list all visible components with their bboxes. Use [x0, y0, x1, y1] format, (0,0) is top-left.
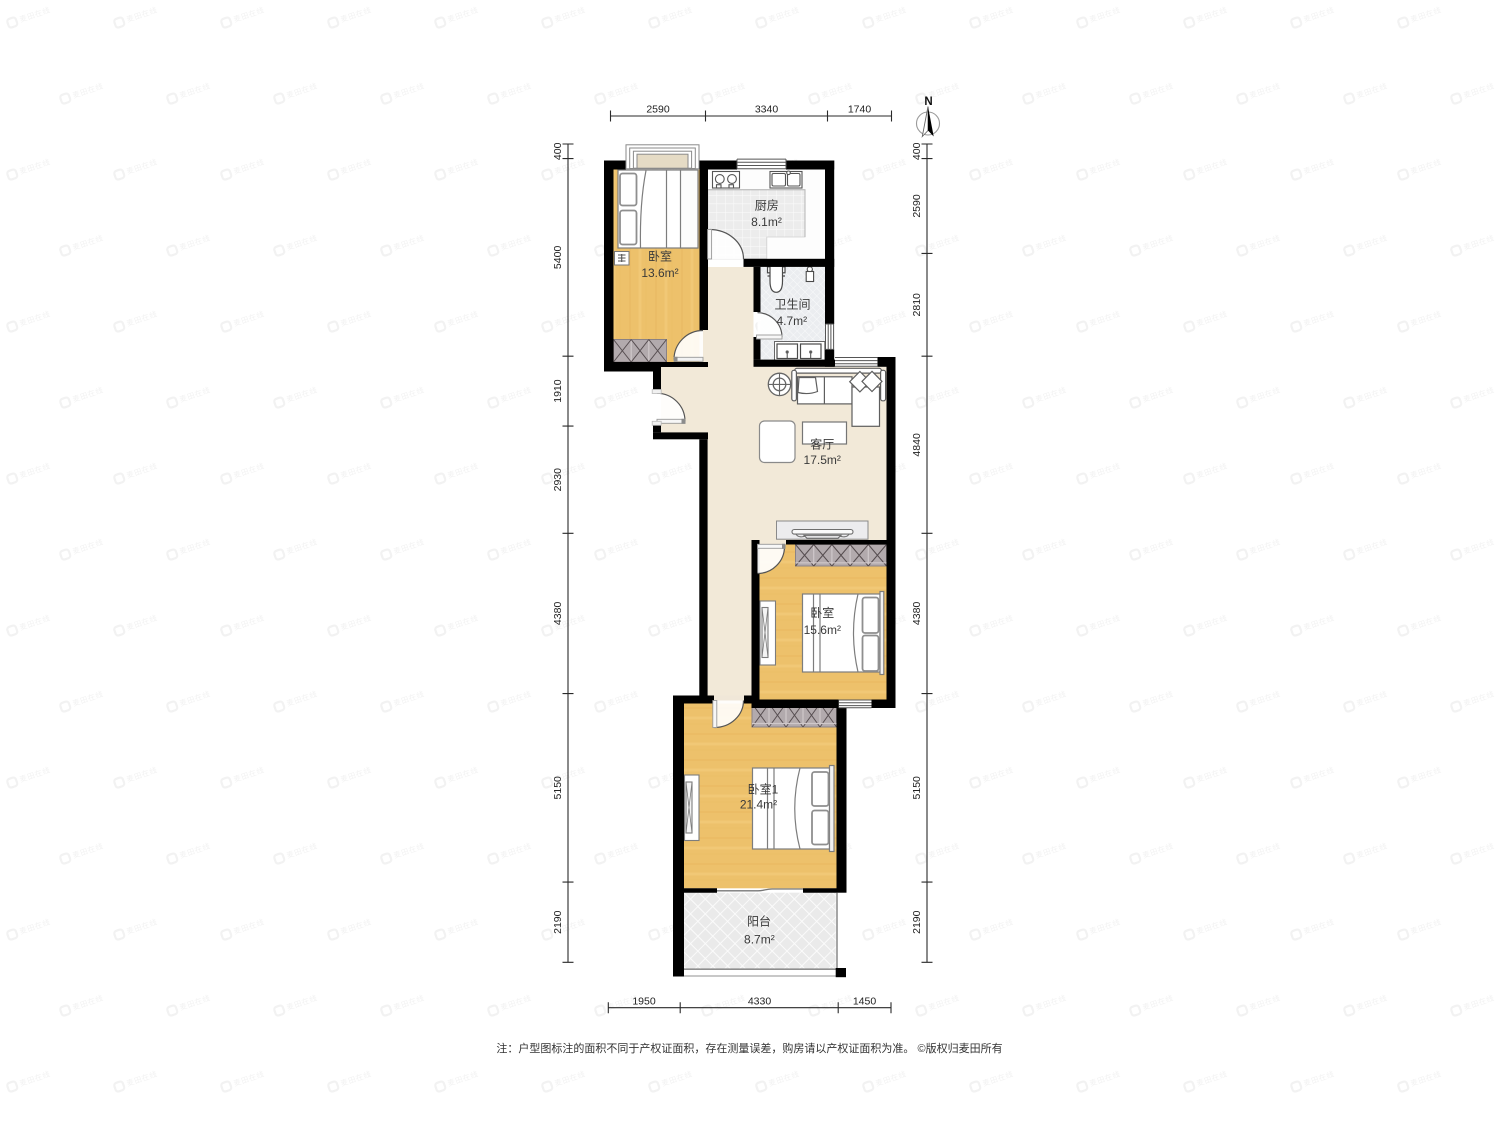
svg-text:4380: 4380: [911, 602, 923, 626]
svg-text:阳台: 阳台: [747, 914, 771, 929]
svg-text:N: N: [924, 96, 932, 108]
svg-text:2190: 2190: [911, 910, 923, 934]
svg-text:17.5m²: 17.5m²: [804, 453, 841, 467]
svg-text:5150: 5150: [552, 776, 564, 800]
svg-text:4840: 4840: [911, 433, 923, 457]
svg-text:卧室: 卧室: [810, 605, 834, 620]
svg-text:21.4m²: 21.4m²: [740, 798, 777, 812]
svg-text:5400: 5400: [552, 246, 564, 270]
svg-text:4330: 4330: [748, 996, 772, 1008]
svg-text:卧室1: 卧室1: [748, 782, 779, 797]
svg-text:2810: 2810: [911, 293, 923, 317]
svg-text:400: 400: [552, 142, 564, 160]
svg-text:2930: 2930: [552, 468, 564, 492]
svg-text:1450: 1450: [853, 996, 877, 1008]
svg-text:厨房: 厨房: [755, 198, 779, 213]
svg-text:2190: 2190: [552, 910, 564, 934]
svg-text:13.6m²: 13.6m²: [641, 266, 678, 280]
svg-text:卫生间: 卫生间: [774, 298, 810, 312]
svg-text:5150: 5150: [911, 776, 923, 800]
svg-text:15.6m²: 15.6m²: [804, 623, 841, 637]
svg-text:2590: 2590: [646, 104, 670, 116]
svg-text:注：户型图标注的面积不同于产权证面积，存在测量误差，购房请以: 注：户型图标注的面积不同于产权证面积，存在测量误差，购房请以产权证面积为准。 ©…: [496, 1041, 1002, 1055]
svg-text:400: 400: [911, 142, 923, 160]
svg-text:4380: 4380: [552, 602, 564, 626]
svg-text:1740: 1740: [848, 104, 872, 116]
svg-text:3340: 3340: [755, 104, 779, 116]
svg-text:4.7m²: 4.7m²: [776, 314, 807, 328]
svg-text:客厅: 客厅: [810, 437, 834, 452]
svg-text:1910: 1910: [552, 379, 564, 403]
svg-text:8.7m²: 8.7m²: [744, 933, 775, 947]
svg-text:卧室: 卧室: [648, 249, 672, 264]
svg-text:8.1m²: 8.1m²: [751, 215, 782, 229]
svg-text:2590: 2590: [911, 194, 923, 218]
svg-text:1950: 1950: [632, 996, 656, 1008]
